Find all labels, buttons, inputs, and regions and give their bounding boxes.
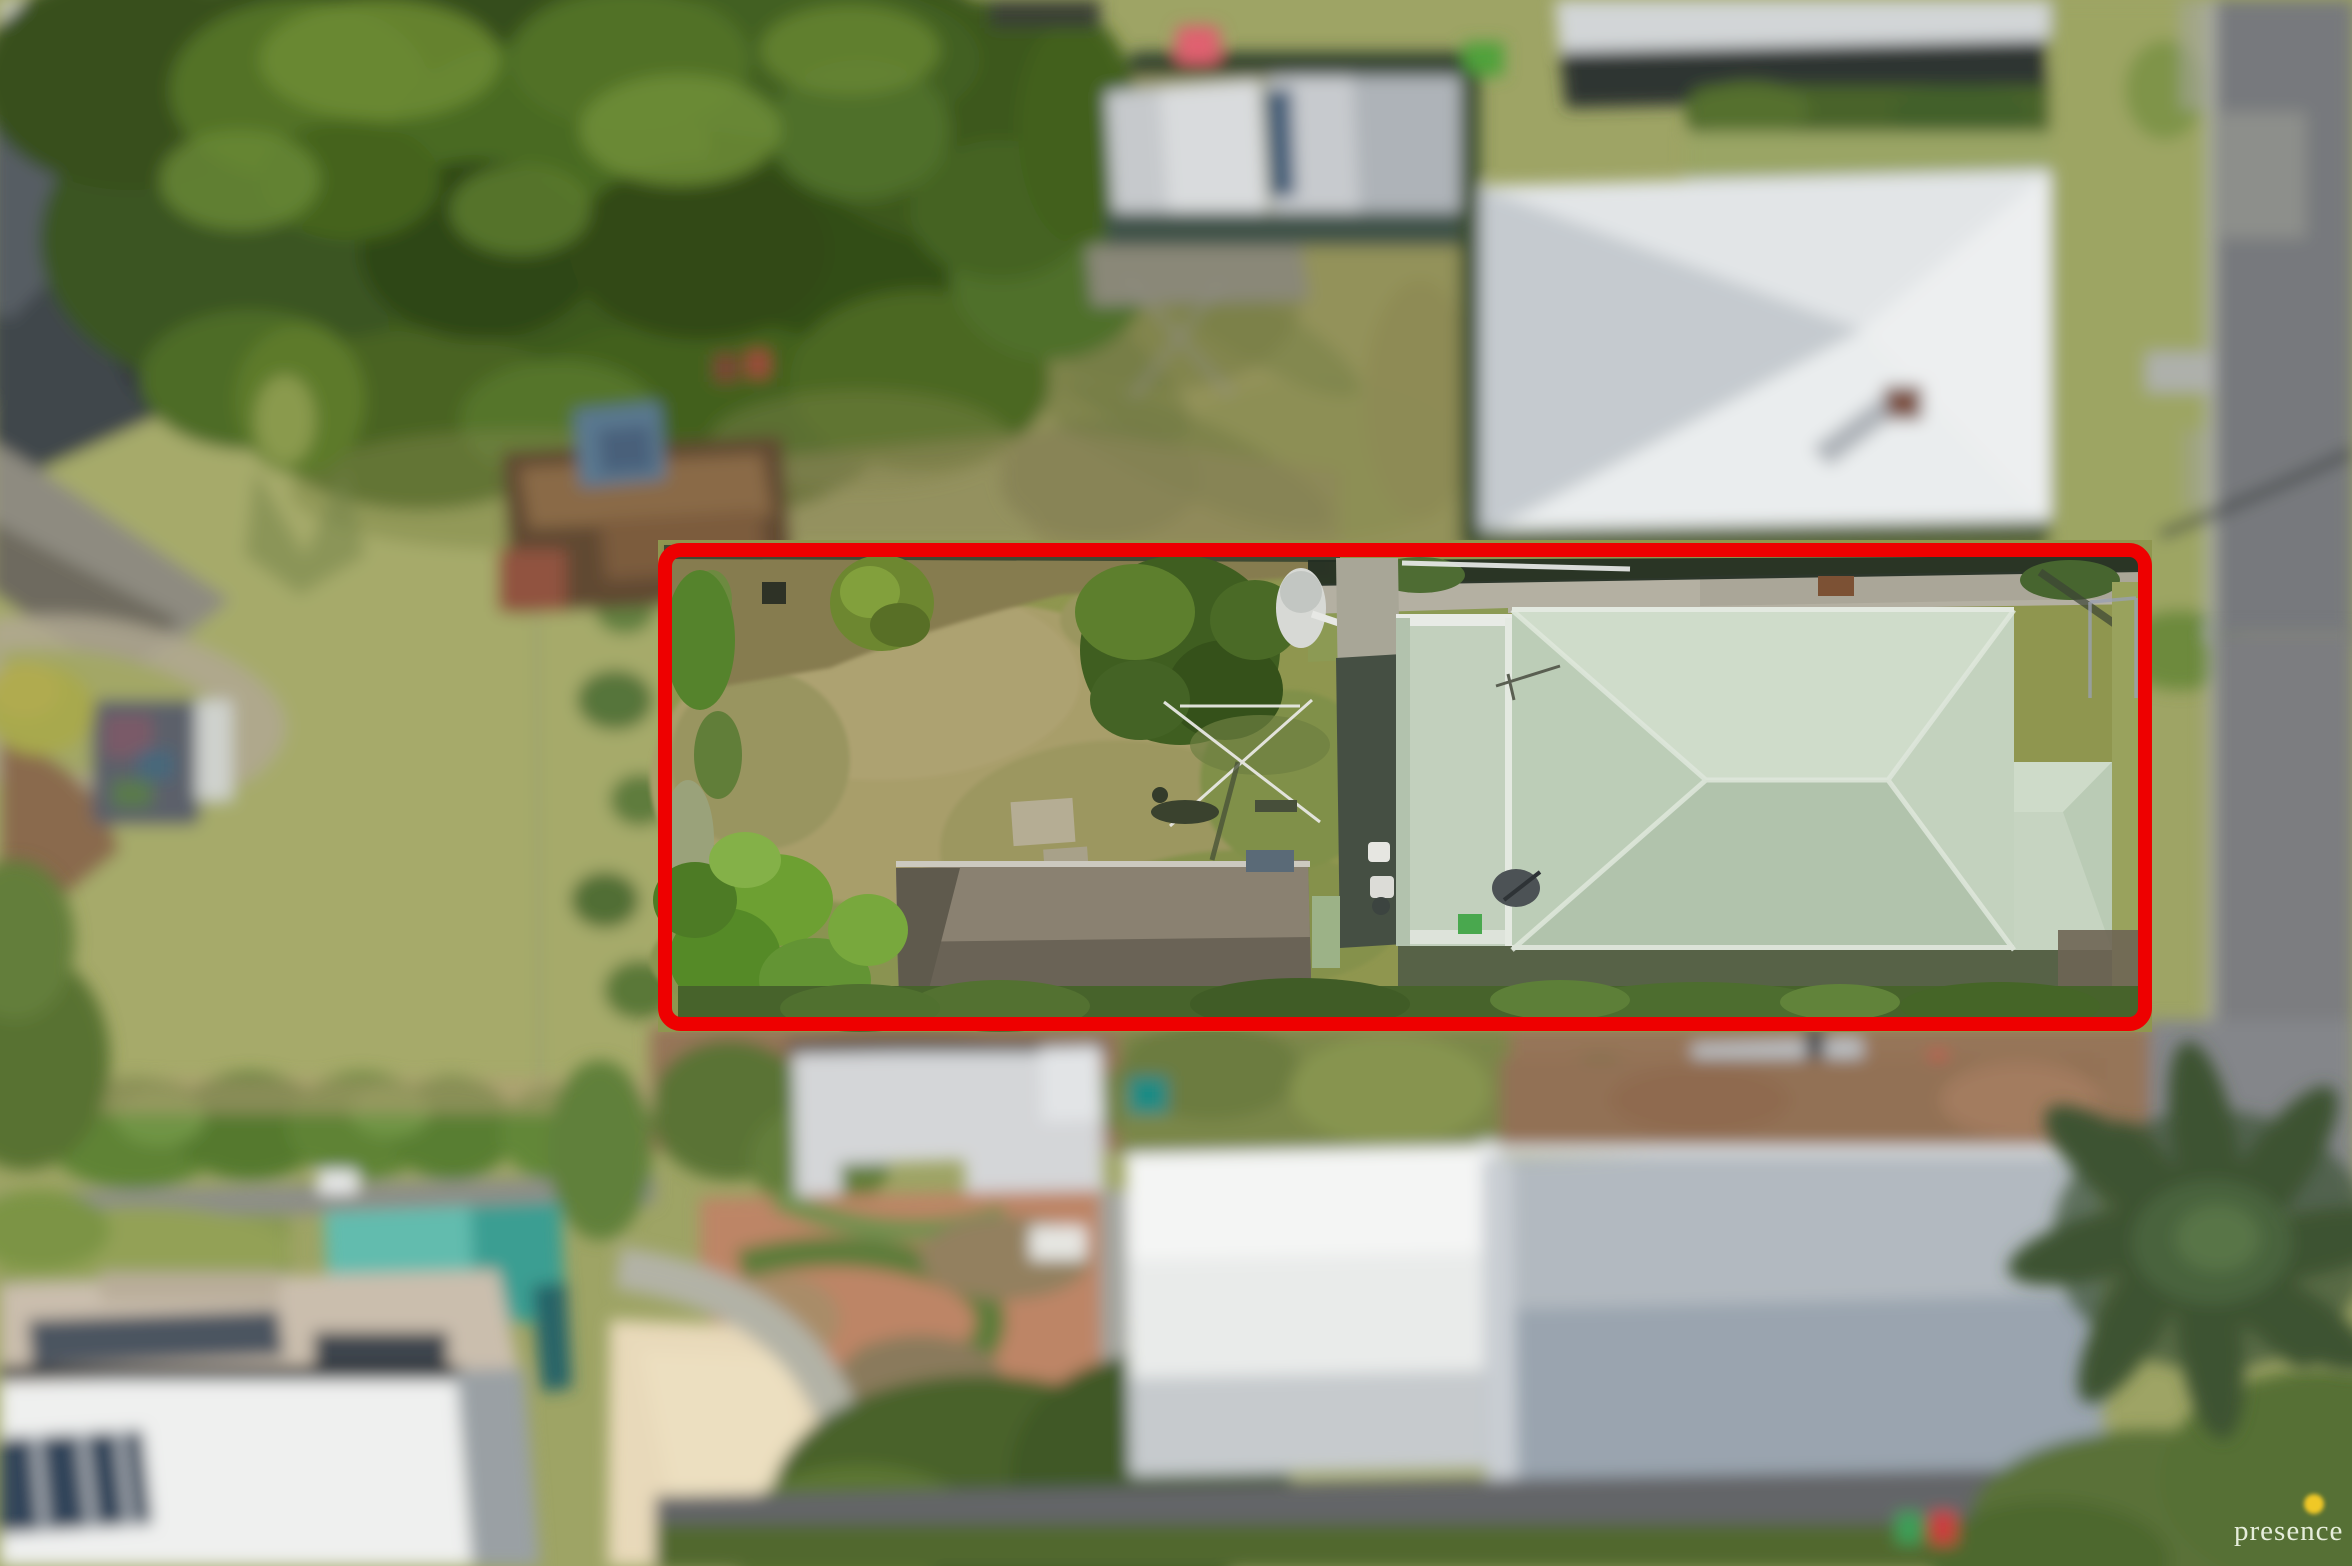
svg-text:presence: presence bbox=[2234, 1515, 2343, 1547]
